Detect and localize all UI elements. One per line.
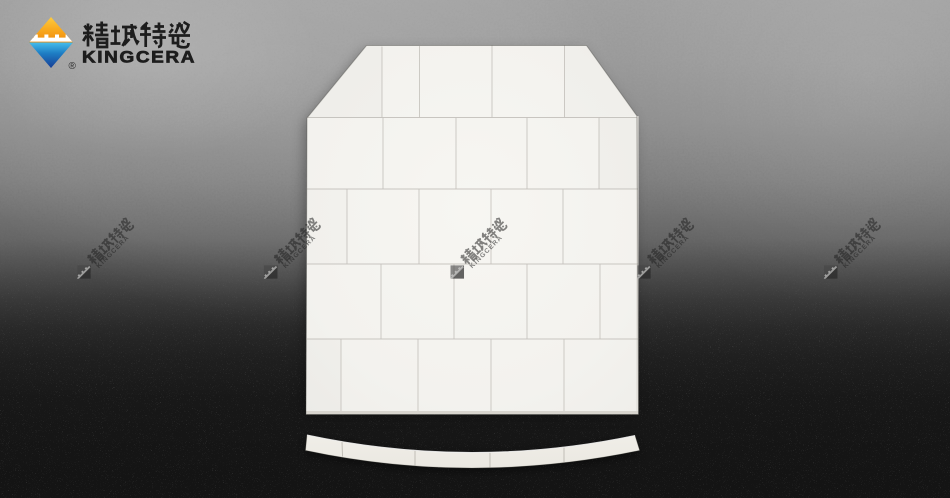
svg-text:KINGCERA: KINGCERA	[82, 49, 196, 67]
svg-text:®: ®	[69, 61, 77, 72]
